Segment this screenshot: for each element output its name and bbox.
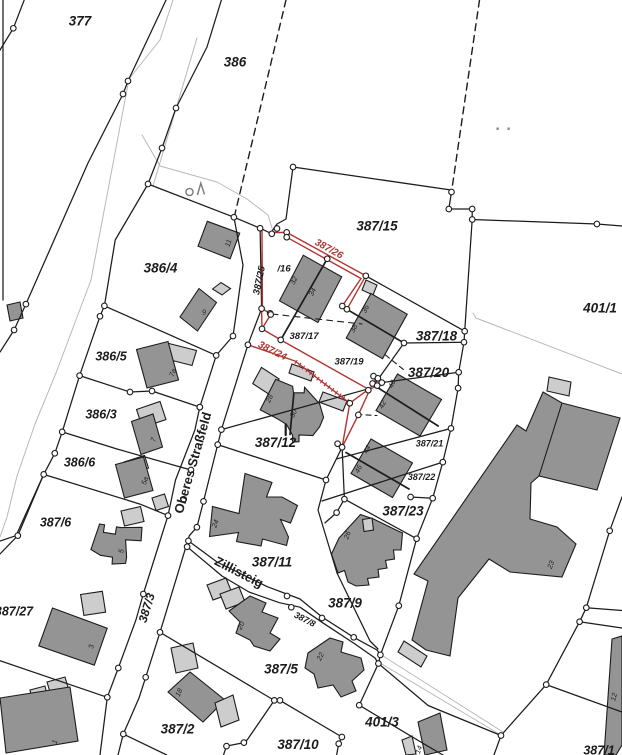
- svg-text:387/1: 387/1: [583, 744, 614, 755]
- svg-text:387/9: 387/9: [328, 596, 362, 611]
- svg-text:387/5: 387/5: [264, 662, 298, 677]
- svg-text:386: 386: [224, 55, 247, 70]
- svg-text:401/3: 401/3: [364, 715, 399, 730]
- svg-text:387/27: 387/27: [0, 605, 34, 619]
- svg-text:386/4: 386/4: [144, 261, 178, 276]
- svg-text:386/5: 386/5: [95, 350, 127, 364]
- svg-text:401/1: 401/1: [582, 301, 617, 316]
- svg-text:377: 377: [69, 14, 93, 29]
- svg-text:387/2: 387/2: [161, 722, 195, 737]
- svg-text:387/15: 387/15: [356, 219, 398, 234]
- svg-text:387/10: 387/10: [277, 737, 319, 752]
- svg-text:387/19: 387/19: [334, 357, 364, 368]
- svg-text:387/11: 387/11: [252, 555, 292, 570]
- svg-text:387/23: 387/23: [382, 504, 424, 519]
- svg-text:387/21: 387/21: [416, 439, 444, 449]
- svg-text:387/18: 387/18: [416, 329, 458, 344]
- svg-text:387/17: 387/17: [289, 331, 319, 342]
- svg-text:/16: /16: [276, 264, 291, 275]
- svg-text:387/20: 387/20: [408, 365, 450, 380]
- svg-text:387/22: 387/22: [408, 472, 436, 482]
- svg-text:387/6: 387/6: [40, 516, 72, 530]
- svg-text:386/3: 386/3: [85, 408, 116, 422]
- svg-text:386/6: 386/6: [64, 456, 96, 470]
- svg-text:387/12: 387/12: [255, 435, 297, 450]
